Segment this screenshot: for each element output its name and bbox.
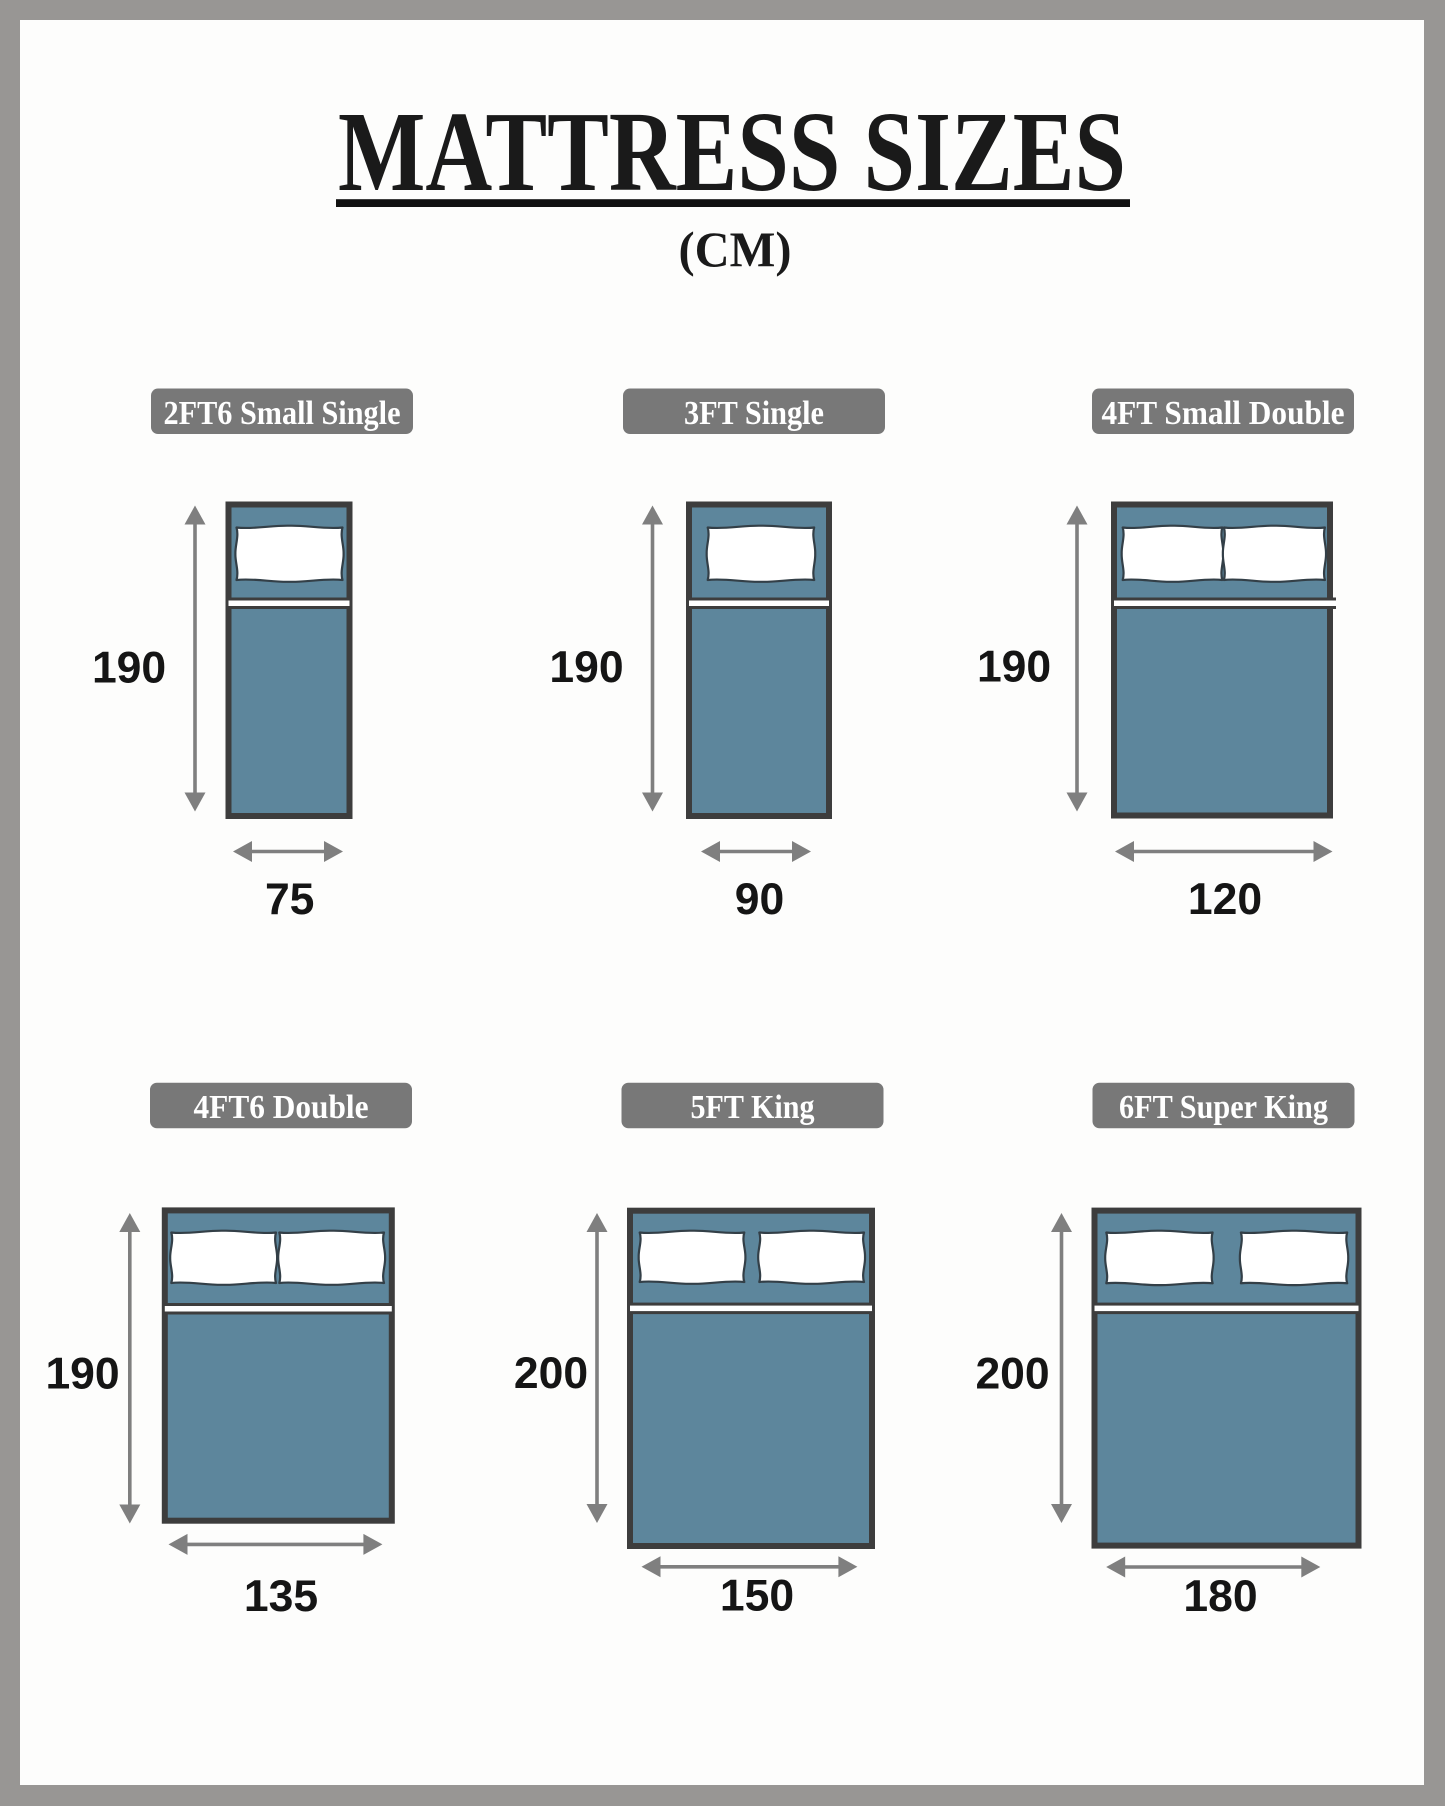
svg-text:MATTRESS SIZES: MATTRESS SIZES bbox=[338, 88, 1126, 215]
svg-text:200: 200 bbox=[975, 1350, 1049, 1399]
svg-text:4FT6 Double: 4FT6 Double bbox=[194, 1089, 369, 1126]
svg-text:(CM): (CM) bbox=[679, 222, 792, 277]
svg-text:3FT Single: 3FT Single bbox=[684, 395, 824, 432]
svg-text:90: 90 bbox=[735, 875, 785, 924]
svg-text:6FT Super King: 6FT Super King bbox=[1119, 1089, 1328, 1126]
svg-text:4FT Small Double: 4FT Small Double bbox=[1102, 395, 1345, 432]
svg-text:190: 190 bbox=[549, 643, 623, 692]
svg-text:190: 190 bbox=[92, 644, 166, 693]
svg-text:150: 150 bbox=[720, 1572, 794, 1621]
svg-text:190: 190 bbox=[977, 643, 1051, 692]
svg-text:75: 75 bbox=[265, 875, 315, 924]
svg-text:200: 200 bbox=[514, 1349, 588, 1398]
svg-text:120: 120 bbox=[1188, 875, 1262, 924]
svg-text:5FT King: 5FT King bbox=[691, 1089, 815, 1126]
svg-text:135: 135 bbox=[244, 1572, 318, 1621]
svg-text:180: 180 bbox=[1183, 1572, 1257, 1621]
svg-text:190: 190 bbox=[45, 1350, 119, 1399]
svg-text:2FT6 Small Single: 2FT6 Small Single bbox=[164, 395, 401, 432]
